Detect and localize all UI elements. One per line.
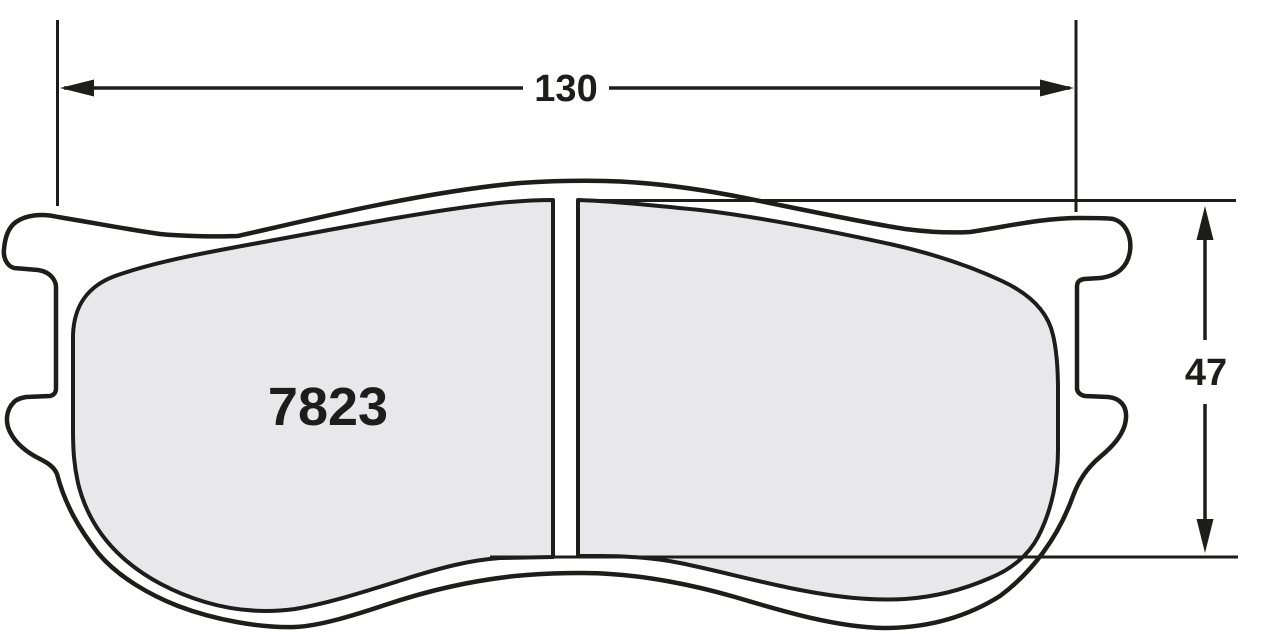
- arrowhead-up-icon: [1197, 206, 1214, 240]
- width-dimension-label: 130: [534, 68, 597, 110]
- part-number-label: 7823: [268, 377, 388, 437]
- arrowhead-left-icon: [60, 80, 94, 97]
- height-dimension-label: 47: [1185, 352, 1227, 394]
- brake-pad-drawing: 7823 130 47: [0, 0, 1262, 634]
- arrowhead-down-icon: [1197, 519, 1214, 553]
- arrowhead-right-icon: [1040, 80, 1074, 97]
- brake-pad-drawing-canvas: 7823 130 47: [0, 0, 1262, 634]
